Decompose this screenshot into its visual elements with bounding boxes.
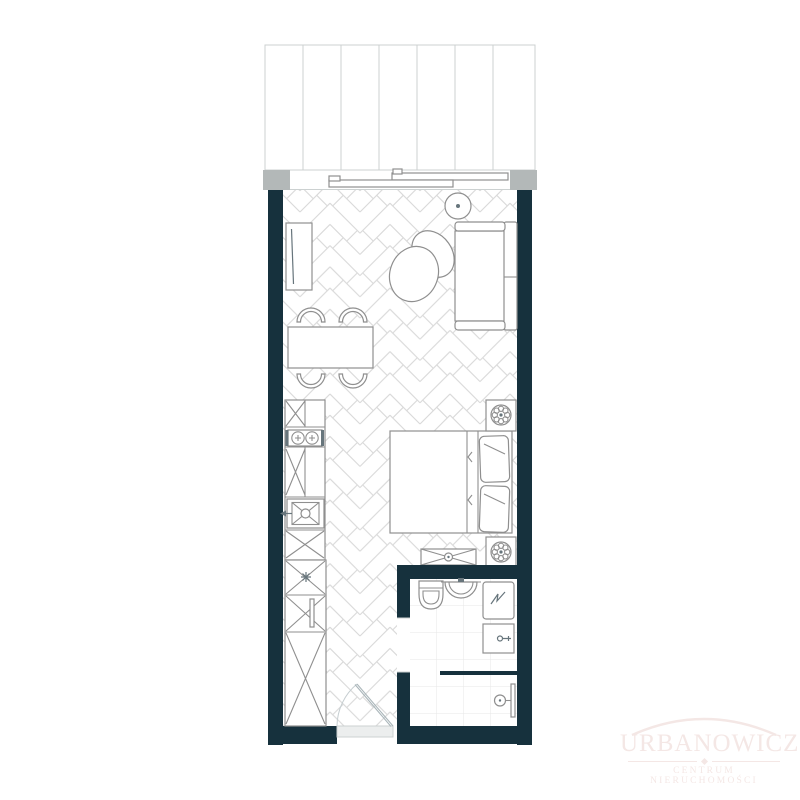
wall-bottom-bathroom (397, 726, 532, 744)
sofa-armrest-bottom (455, 321, 505, 330)
balcony-block-left (263, 170, 290, 190)
balcony-outline (265, 45, 535, 170)
double-bed (390, 431, 512, 533)
sofa (455, 222, 517, 330)
toilet (419, 581, 443, 609)
round-side-table (445, 193, 471, 219)
extractor-icon (301, 572, 311, 582)
nightstand-bottom (486, 537, 516, 568)
shower-divider (440, 671, 517, 675)
kitchen-counter (280, 400, 325, 560)
tall-cabinet-column (285, 560, 326, 726)
wall-left (268, 190, 283, 745)
entrance-threshold (337, 726, 393, 737)
plant-icon (491, 405, 511, 425)
watermark: URBANOWICZ CENTRUM NIERUCHOMOŚCI (620, 703, 788, 786)
bathroom-wall-top (397, 565, 532, 579)
pillow (479, 435, 510, 482)
floorplan: URBANOWICZ CENTRUM NIERUCHOMOŚCI (0, 0, 800, 800)
watermark-subtitle: CENTRUM NIERUCHOMOŚCI (620, 766, 788, 786)
sliding-balcony-door (329, 169, 508, 187)
dining-table (288, 327, 373, 368)
wall-right (517, 190, 532, 745)
watermark-divider (628, 759, 780, 764)
watermark-title: URBANOWICZ (620, 731, 788, 756)
nightstand-top (486, 400, 516, 431)
sofa-backrest (504, 222, 517, 330)
sofa-armrest-top (455, 222, 505, 231)
bathroom-wall-left-upper (397, 565, 410, 618)
two-burner-cooktop (286, 430, 325, 446)
sofa-seat (455, 231, 505, 321)
storage-bench (421, 549, 476, 565)
basin-faucet-icon (458, 578, 464, 582)
pillow (479, 486, 510, 533)
bathroom-doorway (397, 618, 410, 672)
balcony-decking (265, 45, 535, 170)
bathroom-wall-left-lower (397, 672, 410, 744)
tv-sideboard (286, 223, 312, 290)
kitchen-sink (280, 499, 324, 528)
bathroom-cabinet (483, 624, 514, 653)
diamond-icon (700, 758, 707, 765)
fridge-handle (310, 599, 314, 627)
wall-bottom-left (268, 726, 337, 744)
floorplan-drawing (0, 0, 800, 800)
washing-machine (483, 582, 514, 619)
plant-icon (491, 542, 511, 562)
balcony-block-right (510, 170, 537, 190)
balcony (265, 45, 535, 170)
